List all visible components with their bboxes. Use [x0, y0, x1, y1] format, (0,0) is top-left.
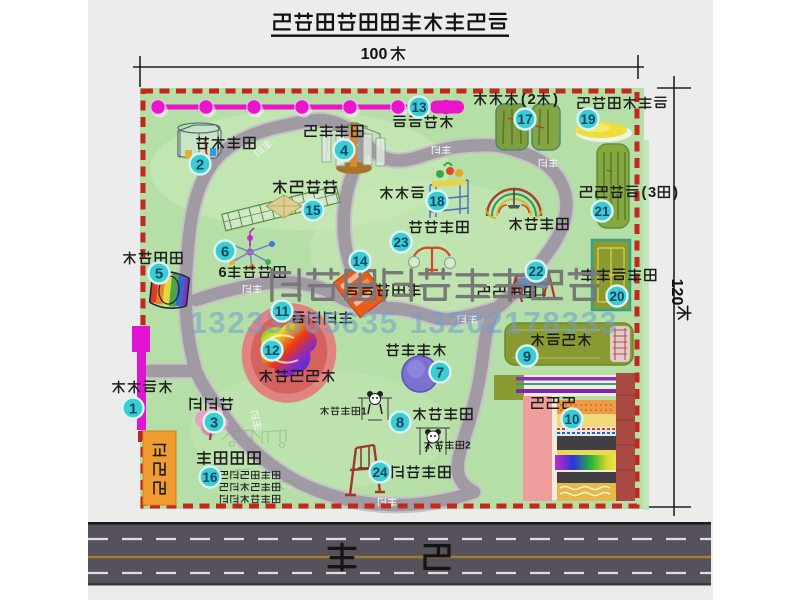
- svg-text:7: 7: [436, 364, 444, 381]
- svg-text:): ): [553, 92, 558, 108]
- svg-text:14: 14: [352, 254, 368, 269]
- svg-text:18: 18: [429, 194, 445, 209]
- svg-text:20: 20: [609, 289, 624, 304]
- svg-text:9: 9: [523, 348, 531, 365]
- svg-text:6: 6: [221, 243, 229, 260]
- svg-text:21: 21: [594, 204, 610, 219]
- svg-text:): ): [673, 185, 678, 201]
- svg-text:13233805635 13202178333: 13233805635 13202178333: [189, 305, 618, 340]
- svg-text:17: 17: [517, 112, 532, 127]
- svg-text:19: 19: [580, 112, 595, 127]
- svg-text:120: 120: [668, 279, 685, 306]
- svg-text:13: 13: [411, 100, 427, 115]
- svg-text:1: 1: [361, 406, 367, 417]
- svg-text:4: 4: [340, 142, 349, 159]
- svg-text:2: 2: [465, 440, 471, 451]
- svg-text:6: 6: [219, 265, 227, 281]
- svg-text:22: 22: [528, 264, 543, 279]
- svg-text:8: 8: [396, 414, 404, 431]
- svg-text:3: 3: [648, 185, 656, 201]
- svg-text:(: (: [642, 185, 647, 201]
- svg-text:1: 1: [129, 400, 137, 417]
- svg-text:3: 3: [210, 414, 218, 431]
- svg-text:23: 23: [393, 235, 409, 250]
- svg-text:(: (: [521, 92, 526, 108]
- svg-text:16: 16: [202, 470, 218, 485]
- svg-text:5: 5: [155, 265, 163, 282]
- svg-text:12: 12: [264, 343, 279, 358]
- svg-text:10: 10: [564, 412, 579, 427]
- svg-text:2: 2: [196, 156, 204, 173]
- svg-text:100: 100: [361, 46, 388, 63]
- svg-text:11: 11: [275, 304, 290, 319]
- svg-text:15: 15: [305, 203, 321, 218]
- svg-text:24: 24: [372, 465, 388, 480]
- svg-text:2: 2: [527, 92, 535, 108]
